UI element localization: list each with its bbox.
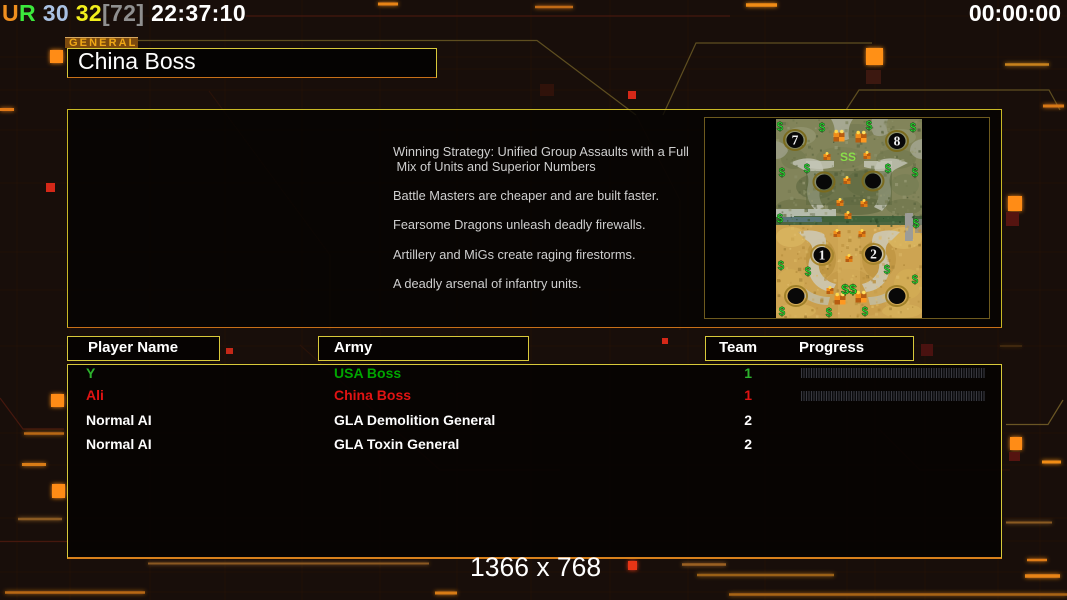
svg-text:$: $	[778, 261, 785, 273]
svg-text:$: $	[885, 164, 892, 176]
svg-text:SS: SS	[840, 150, 856, 164]
svg-text:7: 7	[792, 133, 799, 148]
svg-text:1: 1	[819, 248, 826, 263]
svg-text:$: $	[912, 168, 919, 180]
svg-text:$: $	[913, 219, 920, 231]
svg-text:8: 8	[894, 134, 901, 149]
svg-text:$: $	[826, 308, 833, 319]
svg-text:$: $	[866, 121, 873, 133]
svg-text:2: 2	[870, 247, 877, 262]
svg-text:$: $	[777, 214, 784, 226]
svg-text:$: $	[912, 275, 919, 287]
svg-text:$: $	[779, 307, 786, 319]
svg-text:$: $	[819, 123, 826, 135]
svg-text:$: $	[805, 267, 812, 279]
svg-text:$: $	[779, 168, 786, 180]
svg-text:$: $	[862, 307, 869, 319]
svg-text:$: $	[777, 122, 784, 134]
svg-text:$$: $$	[841, 281, 857, 297]
svg-text:$: $	[910, 123, 917, 135]
svg-text:$: $	[884, 265, 891, 277]
svg-text:$: $	[804, 164, 811, 176]
